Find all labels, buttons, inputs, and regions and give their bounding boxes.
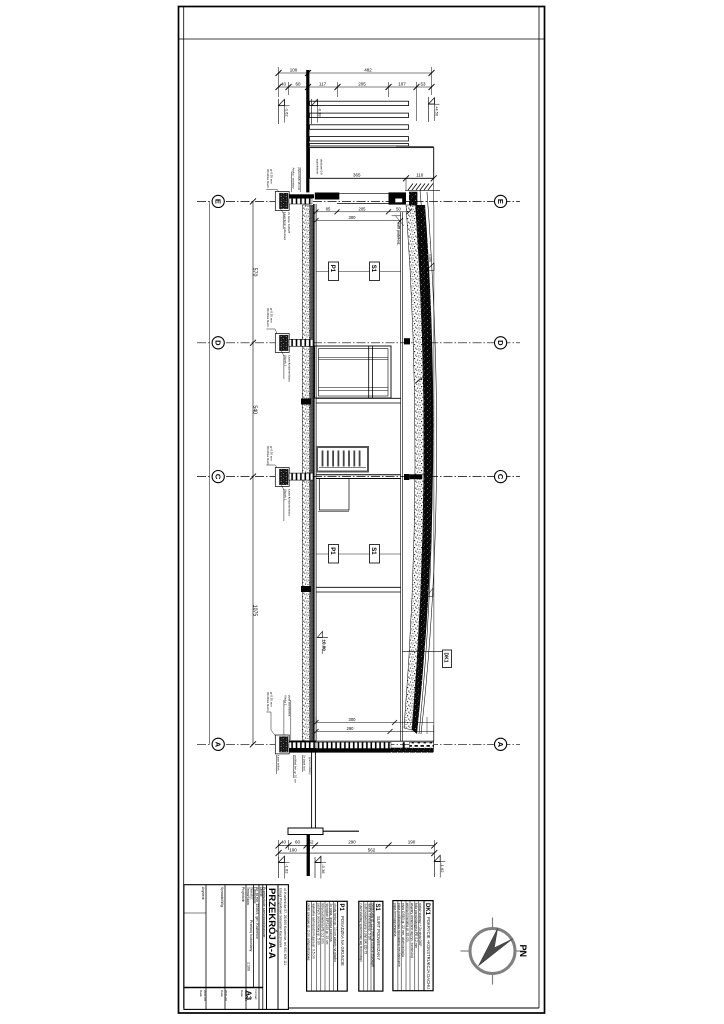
svg-text:papa podkładowa mocowana mecha: papa podkładowa mocowana mechanicznie (397, 903, 401, 967)
svg-text:117: 117 (319, 82, 327, 87)
svg-text:POKRYCIE +KONSTRUKCJA DACHU: POKRYCIE +KONSTRUKCJA DACHU (426, 917, 431, 989)
svg-text:gr 0.55 mm: gr 0.55 mm (270, 692, 274, 707)
svg-text:Obróbka blach.: Obróbka blach. (266, 308, 270, 328)
svg-text:jastrych cementowy gr. 5 cm: jastrych cementowy gr. 5 cm (316, 903, 320, 946)
svg-text:P1: P1 (329, 547, 335, 555)
svg-text:grunt rodzimy: grunt rodzimy (308, 757, 312, 775)
svg-text:D: D (496, 340, 505, 346)
svg-text:-1.62: -1.62 (284, 864, 289, 874)
svg-text:2021-06: 2021-06 (203, 990, 207, 1001)
svg-text:SUFIT PODWIESZANY: SUFIT PODWIESZANY (376, 916, 381, 960)
svg-text:papa termozgrzewalna: papa termozgrzewalna (393, 903, 397, 937)
svg-text:Przedszkole sześciooddziałowe: Przedszkole sześciooddziałowe (262, 887, 266, 938)
svg-text:wypełnienie: wypełnienie (316, 159, 320, 174)
svg-text:85: 85 (326, 206, 331, 211)
svg-text:1075: 1075 (252, 605, 258, 617)
svg-text:1:100: 1:100 (247, 962, 251, 971)
svg-text:1 140: 1 140 (423, 555, 427, 564)
svg-text:wiązary drewniane wg rys. kons: wiązary drewniane wg rys. konstrukcji (410, 903, 414, 958)
svg-text:gr 0.55 mm: gr 0.55 mm (270, 169, 274, 184)
svg-text:C: C (496, 474, 505, 480)
svg-text:-1.62: -1.62 (284, 108, 289, 118)
svg-text:Przekrój budowlany: Przekrój budowlany (249, 920, 253, 952)
svg-text:sufit podwieszany z płyt GK CD: sufit podwieszany z płyt GK CD 75 (364, 904, 368, 955)
svg-text:Ława fundamentowa: Ława fundamentowa (288, 355, 292, 382)
svg-text:60: 60 (295, 82, 301, 87)
svg-text:Usługi Projektowe Sebastian Ka: Usługi Projektowe Sebastian Kaczmarek (278, 888, 282, 948)
svg-text:Obróbka blach.: Obróbka blach. (266, 692, 270, 712)
svg-text:562: 562 (368, 848, 376, 853)
svg-text:205: 205 (358, 82, 366, 87)
svg-text:-0.38: -0.38 (317, 108, 322, 118)
svg-text:Temat/Skala:: Temat/Skala: (246, 887, 250, 906)
svg-text:40: 40 (281, 839, 287, 844)
svg-text:ruszt stalowy systemowy wg tec: ruszt stalowy systemowy wg technologii (359, 904, 363, 962)
svg-text:wylewka samopoziomująca gr. 0.: wylewka samopoziomująca gr. 0.5 cm (312, 904, 316, 960)
svg-text:300: 300 (349, 215, 357, 220)
svg-text:205: 205 (359, 206, 367, 211)
svg-text:płyta GKB gr. 12.5 mm na ruszc: płyta GKB gr. 12.5 mm na ruszcie stalowy… (370, 904, 374, 968)
svg-text:570: 570 (252, 268, 258, 277)
svg-text:deskami 0.8: deskami 0.8 (320, 159, 324, 175)
svg-text:PRZEKRÓJ A-A: PRZEKRÓJ A-A (266, 888, 278, 959)
svg-text:53: 53 (420, 82, 426, 87)
svg-text:2x beton C20/25: 2x beton C20/25 (287, 212, 291, 234)
svg-text:300: 300 (349, 717, 357, 722)
svg-text:50: 50 (396, 206, 401, 211)
svg-text:wełna mineralna gr. 30 cm: wełna mineralna gr. 30 cm (406, 903, 410, 942)
svg-text:DK1: DK1 (443, 653, 449, 663)
svg-text:PN: PN (518, 945, 528, 958)
svg-text:folia paroizolacyjna PE 0.2 mm: folia paroizolacyjna PE 0.2 mm (414, 903, 418, 949)
svg-text:i=5%: i=5% (428, 254, 432, 262)
svg-text:-0.38: -0.38 (321, 864, 326, 874)
svg-text:40: 40 (281, 82, 287, 87)
svg-text:+4.50: +4.50 (434, 106, 439, 117)
svg-text:540: 540 (252, 405, 258, 414)
svg-text:Data:: Data: (240, 990, 244, 997)
svg-text:Obróbka blach.: Obróbka blach. (266, 169, 270, 189)
svg-text:P1: P1 (338, 904, 344, 912)
svg-text:ul. Kozienicka 57, 26-900 Kozi: ul. Kozienicka 57, 26-900 Kozienice, tel… (283, 888, 287, 965)
svg-text:1 042: 1 042 (426, 296, 431, 307)
svg-text:100: 100 (290, 68, 298, 73)
svg-text:107: 107 (398, 82, 406, 87)
svg-text:E: E (496, 199, 505, 204)
svg-text:płyta OSB3 gr. 22 mm, wiatroiz: płyta OSB3 gr. 22 mm, wiatroizolacja (401, 903, 405, 957)
svg-text:P1: P1 (329, 265, 335, 273)
svg-text:dz. nr ew. 1546/4, gm. Kozieni: dz. nr ew. 1546/4, gm. Kozienice (255, 887, 259, 939)
svg-text:±0.00: ±0.00 (322, 640, 327, 652)
svg-text:Projektant:: Projektant: (241, 887, 245, 902)
svg-text:gr 0.55 mm: gr 0.55 mm (270, 446, 274, 461)
svg-text:Data:: Data: (220, 990, 224, 997)
svg-text:DK1: DK1 (424, 903, 430, 916)
svg-text:S1: S1 (370, 265, 376, 273)
svg-text:2021-06: 2021-06 (244, 990, 248, 1001)
svg-text:Asystent:: Asystent: (201, 887, 205, 900)
svg-text:E: E (214, 199, 223, 204)
svg-text:płytki gresowe gr. 2 cm antypo: płytki gresowe gr. 2 cm antypoślizgowe (307, 904, 311, 961)
svg-text:290: 290 (348, 839, 356, 844)
svg-text:A: A (496, 742, 505, 748)
svg-text:-1.62: -1.62 (440, 863, 445, 873)
svg-text:Obróbka blach.: Obróbka blach. (266, 446, 270, 466)
svg-text:2x papa, izolacja pozioma: 2x papa, izolacja pozioma (329, 904, 333, 942)
svg-text:A: A (214, 742, 223, 748)
svg-text:2021-06: 2021-06 (224, 990, 228, 1001)
svg-text:482: 482 (364, 68, 372, 73)
svg-text:folia budowlana PE 0.2 mm: folia budowlana PE 0.2 mm (321, 904, 325, 944)
svg-text:S1: S1 (370, 547, 376, 555)
svg-text:110: 110 (416, 173, 424, 178)
svg-text:365: 365 (353, 173, 361, 178)
svg-text:gr 0.55 mm: gr 0.55 mm (270, 308, 274, 323)
svg-text:Ława fundamentowa: Ława fundamentowa (288, 489, 292, 516)
svg-text:52: 52 (308, 839, 314, 844)
svg-text:POSADZKA NA GRUNCIE: POSADZKA NA GRUNCIE (340, 916, 345, 966)
svg-text:stelaż stalowy + 2x płyta GKF: stelaż stalowy + 2x płyta GKF (418, 903, 422, 946)
svg-text:Sprawdził/Wg:: Sprawdził/Wg: (220, 887, 224, 907)
svg-text:Data:: Data: (199, 990, 203, 997)
svg-text:C: C (214, 474, 223, 480)
svg-text:styropian EPS100 gr. 10 cm: styropian EPS100 gr. 10 cm (325, 904, 329, 945)
svg-text:60: 60 (295, 839, 301, 844)
svg-text:Format:: Format: (254, 990, 258, 1001)
svg-text:D: D (214, 340, 223, 346)
svg-text:100: 100 (289, 848, 297, 853)
svg-text:chudy beton gr. 10 cm zatarty: chudy beton gr. 10 cm zatarty na gładko (333, 904, 337, 963)
svg-text:290: 290 (347, 726, 355, 731)
svg-text:190: 190 (408, 839, 416, 844)
svg-text:sufit podwiesz.: sufit podwiesz. (397, 223, 401, 246)
